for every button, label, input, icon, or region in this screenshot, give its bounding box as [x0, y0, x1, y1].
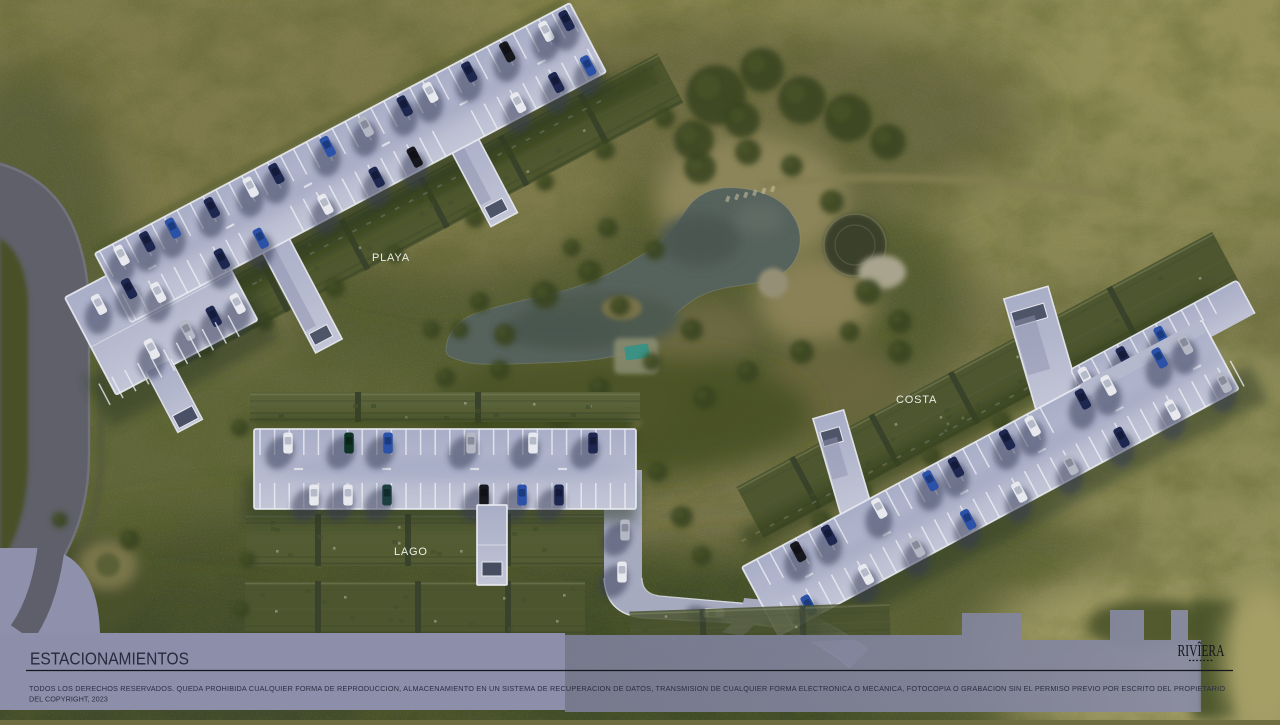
svg-text:ESTACIONAMIENTOS: ESTACIONAMIENTOS — [30, 649, 189, 669]
svg-text:PLAYA: PLAYA — [372, 252, 410, 264]
svg-text:LAGO: LAGO — [394, 546, 428, 558]
svg-text:TODOS LOS DERECHOS RESERVADOS.: TODOS LOS DERECHOS RESERVADOS. QUEDA PRO… — [29, 684, 1225, 693]
svg-text:RIVÎERA: RIVÎERA — [1178, 641, 1225, 660]
svg-text:DEL COPYRIGHT, 2023: DEL COPYRIGHT, 2023 — [29, 695, 108, 704]
svg-text:COSTA: COSTA — [896, 394, 937, 406]
